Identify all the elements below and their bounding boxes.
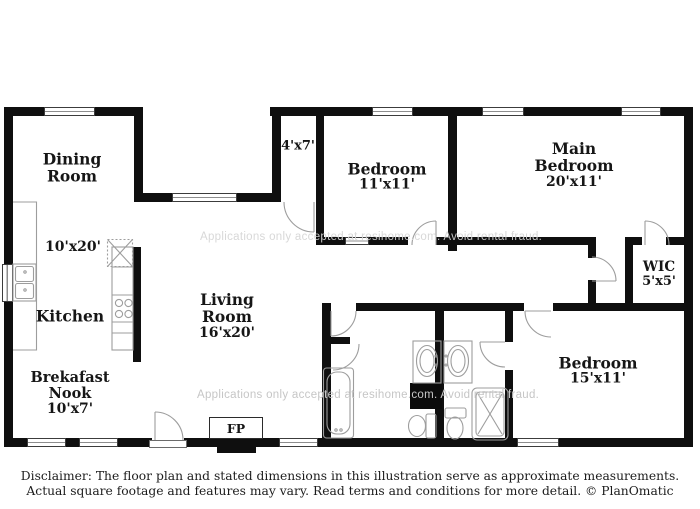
watermark-upper: Applications only accepted at resihome.c… bbox=[200, 231, 542, 243]
sink-icon-left bbox=[413, 341, 441, 383]
room-label-bedroom11: Bedroom 11'x11' bbox=[347, 160, 426, 193]
door-arc-bath-right bbox=[480, 342, 505, 367]
stove-icon bbox=[115, 299, 132, 317]
door-arc-entry-hall bbox=[284, 202, 314, 232]
bathtub-icon bbox=[324, 368, 354, 438]
room-label-kitchen: Kitchen bbox=[36, 307, 104, 324]
dining-name-line2: Room bbox=[43, 168, 102, 185]
disclaimer-line1: Disclaimer: The floor plan and stated di… bbox=[21, 469, 679, 484]
room-dim-dining: 10'x20' bbox=[45, 240, 101, 256]
room-label-bedroom15: Bedroom 15'x11' bbox=[558, 354, 637, 387]
kitchen-counter-right bbox=[112, 247, 133, 350]
watermark-lower: Applications only accepted at resihome.c… bbox=[197, 389, 539, 401]
room-label-main-bedroom: Main Bedroom 20'x11' bbox=[534, 140, 613, 190]
fixtures-layer bbox=[0, 0, 700, 509]
door-arc-vestibule bbox=[592, 257, 616, 281]
toilet-icon-right bbox=[445, 408, 466, 439]
dining-name-line1: Dining bbox=[43, 151, 102, 168]
toilet-icon-left bbox=[409, 414, 437, 438]
floor-plan-canvas: Dining Room 10'x20' 4'x7' Bedroom 11'x11… bbox=[0, 0, 700, 509]
front-door-arc bbox=[155, 412, 183, 440]
disclaimer-line2: Actual square footage and features may v… bbox=[21, 484, 679, 499]
room-label-living: Living Room 16'x20' bbox=[199, 291, 255, 341]
room-dim-entry-hall: 4'x7' bbox=[281, 140, 315, 155]
sink-icon-right bbox=[444, 341, 472, 383]
door-arc-bath-left bbox=[331, 311, 356, 336]
room-label-dining: Dining Room bbox=[43, 151, 102, 186]
room-label-breakfast-nook: Brekafast Nook 10'x7' bbox=[30, 370, 109, 418]
door-arc-bedroom15 bbox=[525, 311, 551, 337]
kitchen-counter-left bbox=[13, 202, 37, 350]
door-arc-wic bbox=[645, 221, 669, 245]
room-label-wic: WIC 5'x5' bbox=[642, 260, 676, 290]
door-arc-bath-inner bbox=[333, 344, 359, 370]
disclaimer-text: Disclaimer: The floor plan and stated di… bbox=[21, 469, 679, 499]
pantry-icon bbox=[108, 240, 133, 267]
